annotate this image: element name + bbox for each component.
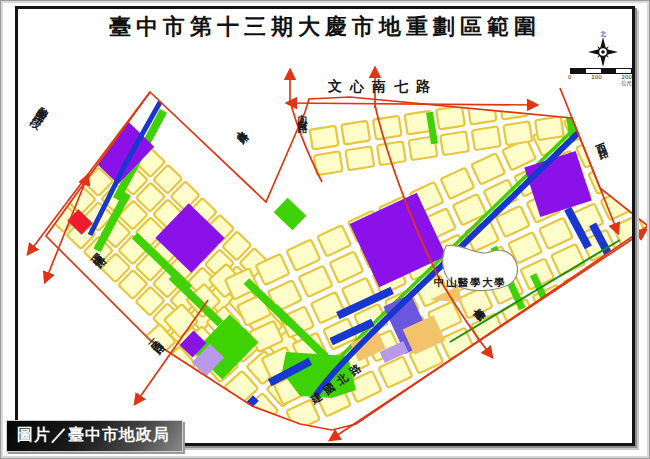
scale-unit-label: 公尺 (570, 80, 632, 87)
credit-badge: 圖片／臺中市地政局 (6, 420, 183, 452)
scale-bar: 0 100 200 公尺 (570, 68, 642, 87)
scale-tick-100: 100 (591, 74, 602, 80)
landmark-label-university: 中山醫學大學 (434, 276, 506, 290)
road-label-wenxin-south-7th: 文心南七路 (328, 78, 438, 96)
compass-north-label: 北 (591, 30, 615, 39)
road-label-xiangxin-south: 向心南路 (295, 106, 309, 118)
map-title: 臺中市第十三期大慶市地重劃區範圍 (0, 12, 650, 42)
scale-tick-0: 0 (568, 74, 572, 80)
framed-map-image: 臺中市第十三期大慶市地重劃區範圍 文心南七路 向心南路 永春路 黎明路一段 環中… (0, 0, 650, 459)
